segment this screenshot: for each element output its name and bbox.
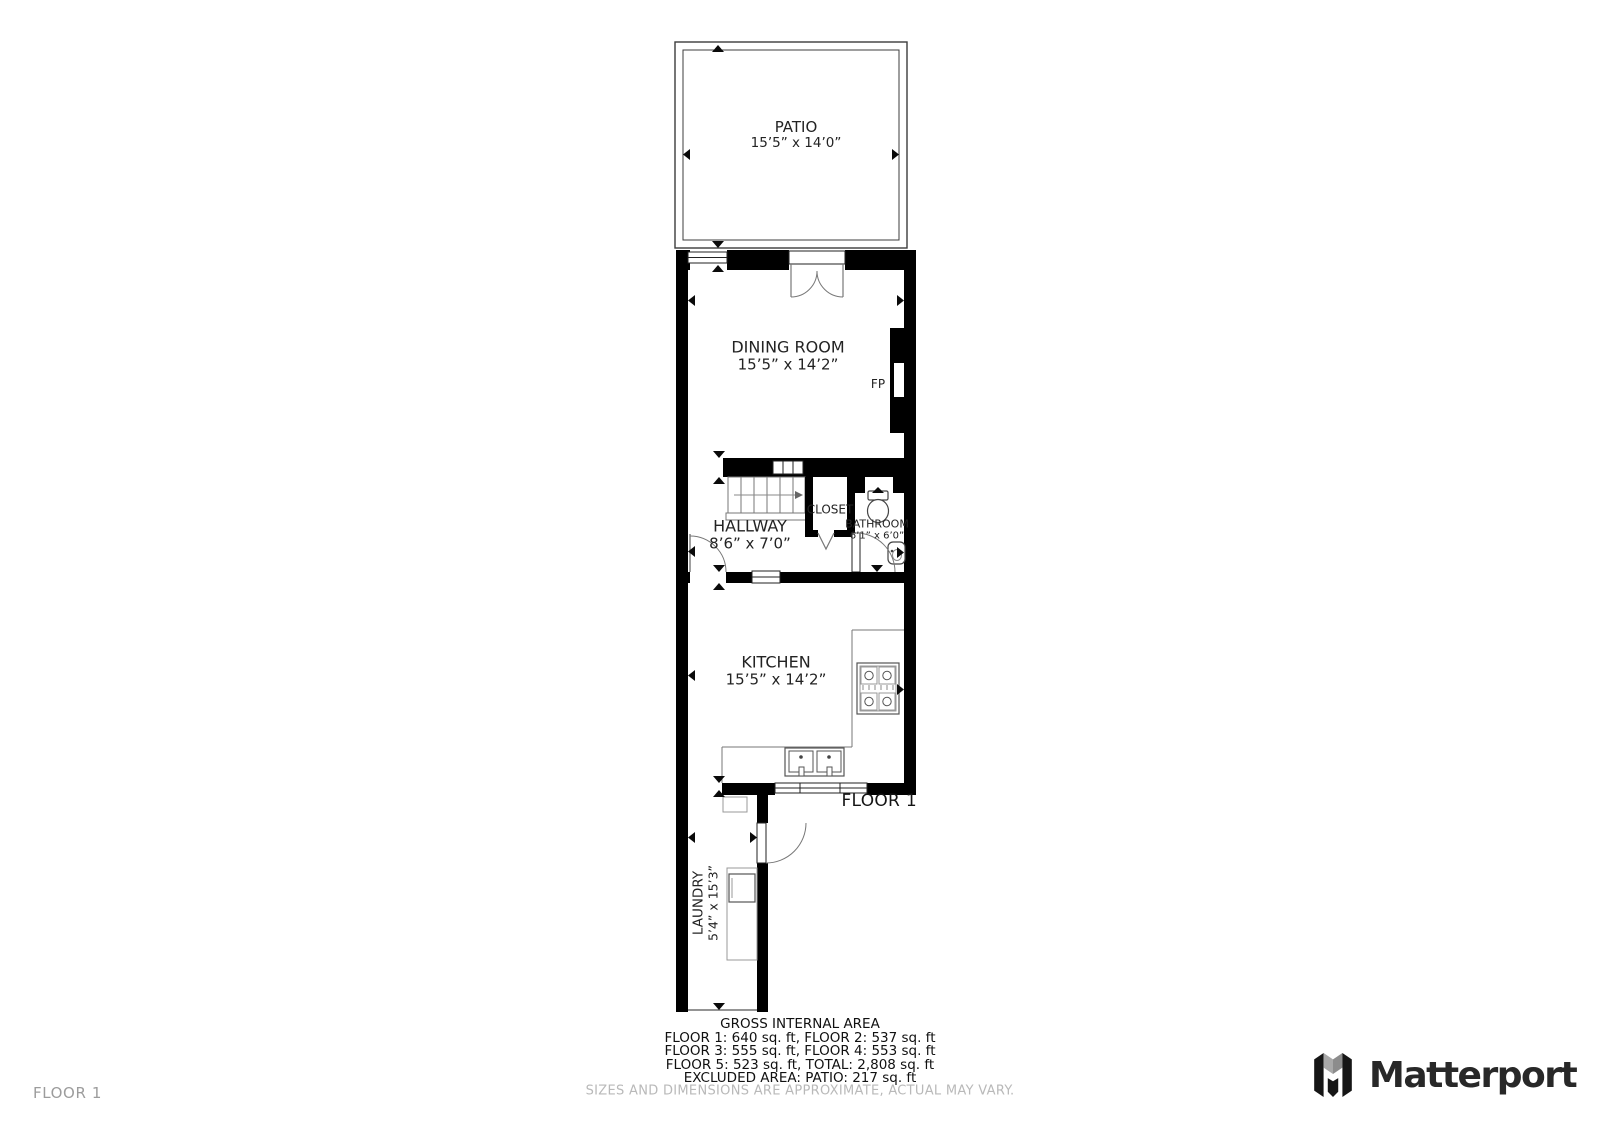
fireplace-icon [890, 328, 904, 433]
fireplace-label: FP [871, 377, 885, 391]
room-label-dining: DINING ROOM 15’5” x 14’2” [731, 339, 844, 374]
room-dims: 15’5” x 14’0” [751, 136, 842, 151]
window-hallway-kitchen [752, 571, 780, 583]
stairs-icon [726, 477, 807, 520]
kitchen-sink-icon [785, 748, 844, 776]
french-door-icon [789, 251, 845, 297]
room-label-patio: PATIO 15’5” x 14’0” [751, 119, 842, 151]
room-name: BATHROOM [845, 518, 909, 530]
room-name: DINING ROOM [731, 339, 844, 357]
room-dims: 8’6” x 7’0” [709, 536, 791, 553]
matterport-mark-icon [1310, 1051, 1356, 1099]
brand-name: Matterport [1369, 1055, 1576, 1096]
wall-hallway-kitchen [676, 572, 904, 583]
floorplan-drawing [0, 0, 1600, 1132]
area-summary: GROSS INTERNAL AREA FLOOR 1: 640 sq. ft,… [664, 1018, 935, 1086]
room-dims: 15’5” x 14’2” [726, 672, 827, 689]
window-dining-north [688, 252, 727, 263]
floor-selector-label[interactable]: FLOOR 1 [33, 1084, 102, 1102]
laundry-door-icon [757, 823, 806, 863]
room-name: CLOSET [807, 503, 854, 516]
plan-floor-label: FLOOR 1 [841, 791, 917, 811]
floorplan-page: PATIO 15’5” x 14’0” DINING ROOM 15’5” x … [0, 0, 1600, 1132]
fireplace-text: FP [871, 377, 885, 391]
room-dims: 6’1” x 6’0” [845, 531, 909, 542]
room-name: PATIO [751, 119, 842, 136]
room-name: KITCHEN [726, 654, 827, 672]
room-label-hallway: HALLWAY 8’6” x 7’0” [709, 518, 791, 553]
room-name: LAUNDRY [691, 865, 706, 941]
room-label-laundry: LAUNDRY 5’4” x 15’3” [691, 865, 720, 941]
brand-logo: Matterport [1310, 1050, 1576, 1100]
room-dims: 15’5” x 14’2” [731, 357, 844, 374]
laundry-step [723, 797, 747, 812]
room-label-bathroom: BATHROOM 6’1” x 6’0” [845, 518, 909, 542]
bifold-door-icon [818, 533, 834, 549]
room-label-kitchen: KITCHEN 15’5” x 14’2” [726, 654, 827, 689]
disclaimer-text: SIZES AND DIMENSIONS ARE APPROXIMATE, AC… [586, 1084, 1015, 1099]
wall-dining-hallway [723, 458, 904, 477]
room-dims: 5’4” x 15’3” [707, 865, 721, 941]
room-label-closet: CLOSET [807, 503, 854, 516]
room-name: HALLWAY [709, 518, 791, 536]
stove-icon [857, 663, 899, 714]
washer-icon [727, 868, 757, 960]
